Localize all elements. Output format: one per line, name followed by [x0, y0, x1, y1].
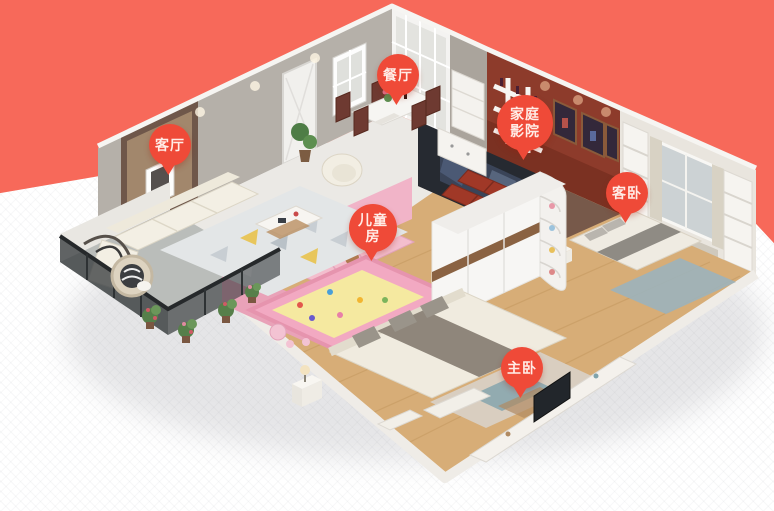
- room-pin-kids-room: 儿童房: [349, 204, 397, 252]
- movie-poster: [606, 124, 618, 161]
- curtain: [650, 136, 662, 222]
- curtain: [712, 164, 724, 250]
- room-pin-label: 家庭影院: [508, 106, 542, 140]
- room-pin-master-bedroom: 主卧: [501, 347, 543, 389]
- lamp: [300, 365, 310, 375]
- room-pin-home-theater: 家庭影院: [497, 95, 553, 151]
- room-pin-living: 客厅: [149, 124, 191, 166]
- room-pin-dining: 餐厅: [377, 54, 419, 96]
- cushion: [137, 281, 151, 291]
- room-pin-label: 客厅: [155, 135, 185, 155]
- room-pin-guest-bedroom: 客卧: [606, 172, 648, 214]
- room-pin-label: 主卧: [507, 358, 537, 378]
- poster-canvas: 餐厅 客厅 家庭影院 客卧 儿童房 主卧: [0, 0, 774, 511]
- room-pin-label: 儿童房: [356, 212, 390, 244]
- room-pin-label: 客卧: [612, 183, 642, 203]
- room-pin-label: 餐厅: [383, 65, 413, 85]
- kids-table: [270, 324, 286, 340]
